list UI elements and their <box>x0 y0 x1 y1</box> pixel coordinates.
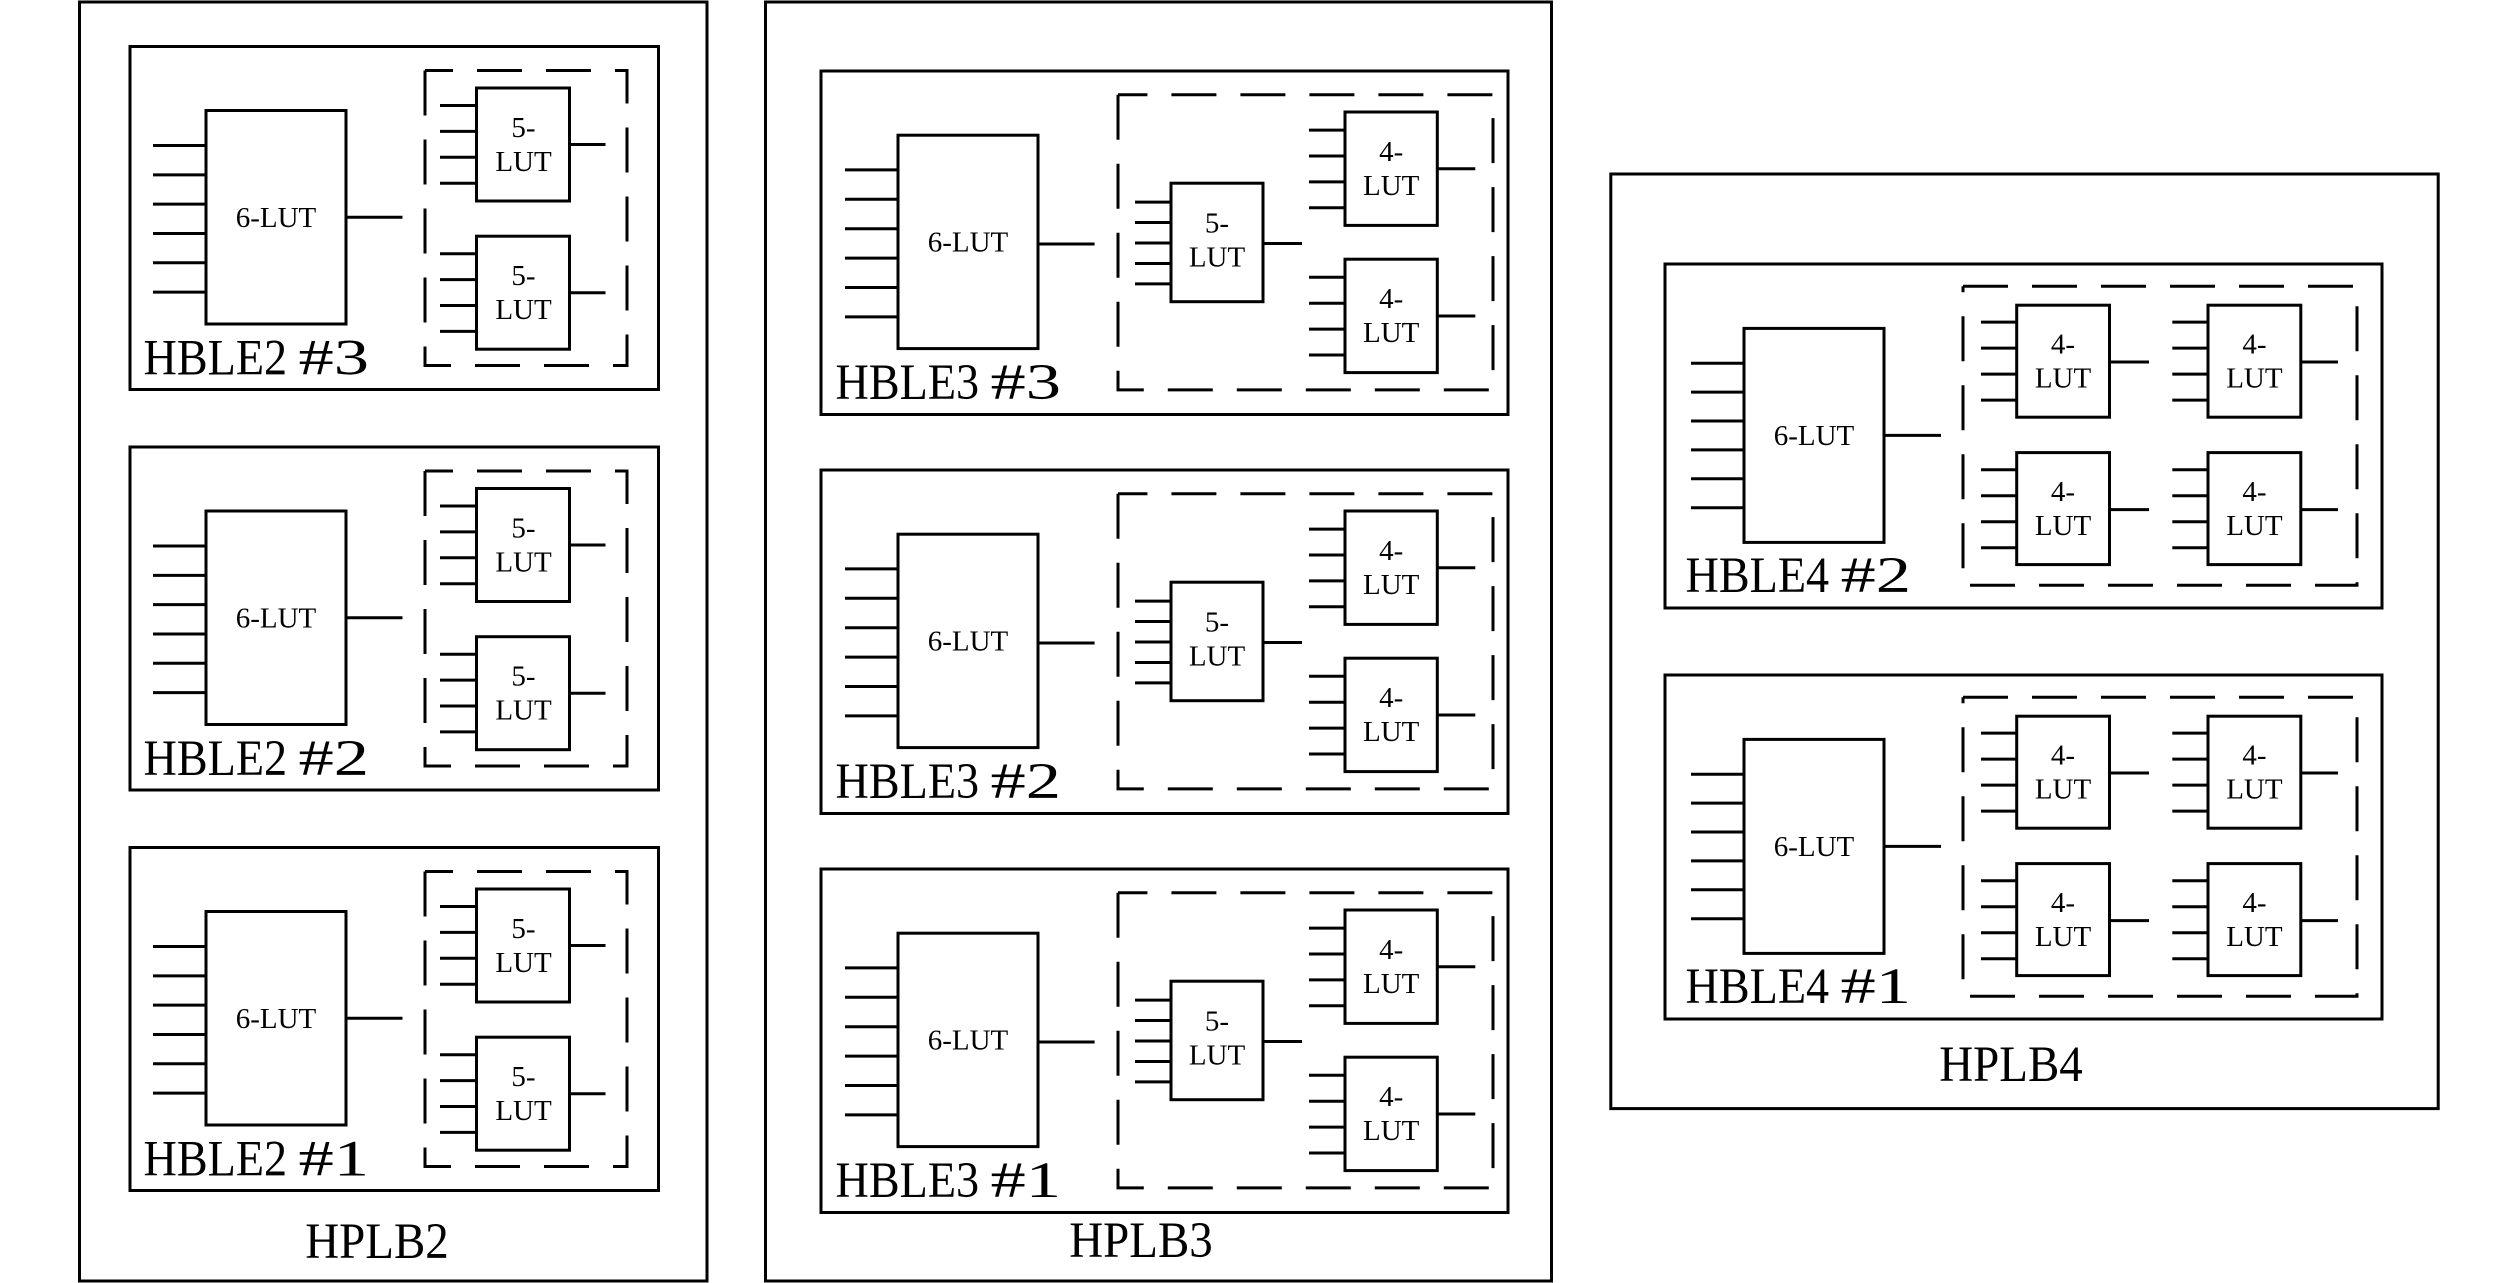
svg-text:HBLE3: HBLE3 <box>836 1152 980 1208</box>
svg-text:HBLE3: HBLE3 <box>836 354 980 410</box>
svg-text:HPLB2: HPLB2 <box>305 1213 449 1269</box>
svg-text:#2: #2 <box>1841 547 1912 603</box>
svg-text:#1: #1 <box>991 1152 1062 1208</box>
svg-text:HBLE2: HBLE2 <box>144 330 288 386</box>
svg-text:6-LUT: 6-LUT <box>236 603 317 635</box>
svg-text:#1: #1 <box>1841 958 1912 1014</box>
svg-text:#1: #1 <box>299 1131 370 1187</box>
svg-text:6-LUT: 6-LUT <box>928 227 1009 259</box>
svg-text:HBLE2: HBLE2 <box>144 1131 288 1187</box>
svg-text:#2: #2 <box>991 753 1062 809</box>
svg-text:6-LUT: 6-LUT <box>1774 831 1855 863</box>
svg-text:#2: #2 <box>299 730 370 786</box>
svg-text:#3: #3 <box>299 330 370 386</box>
svg-text:HBLE2: HBLE2 <box>144 730 288 786</box>
svg-text:6-LUT: 6-LUT <box>1774 420 1855 452</box>
svg-text:6-LUT: 6-LUT <box>236 202 317 234</box>
svg-text:HBLE4: HBLE4 <box>1686 958 1830 1014</box>
svg-text:6-LUT: 6-LUT <box>928 626 1009 658</box>
svg-text:6-LUT: 6-LUT <box>928 1025 1009 1057</box>
svg-text:#3: #3 <box>991 354 1062 410</box>
svg-text:HBLE3: HBLE3 <box>836 753 980 809</box>
svg-text:HPLB4: HPLB4 <box>1939 1036 2083 1092</box>
svg-text:HBLE4: HBLE4 <box>1686 547 1830 603</box>
svg-text:HPLB3: HPLB3 <box>1069 1212 1213 1268</box>
svg-text:6-LUT: 6-LUT <box>236 1003 317 1035</box>
